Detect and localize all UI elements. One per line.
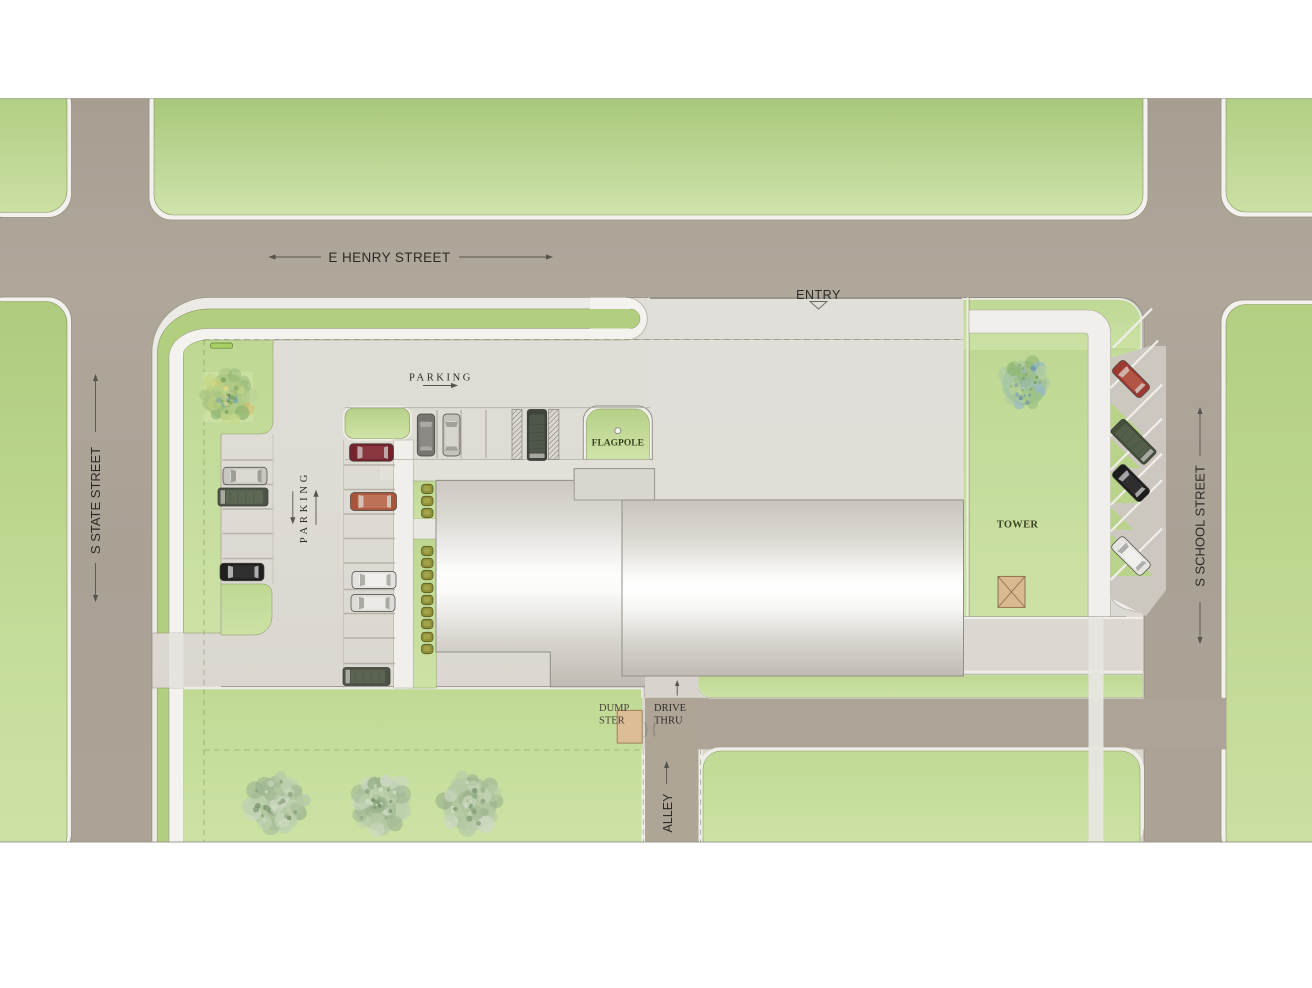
svg-text:ENTRY: ENTRY [796, 288, 841, 302]
svg-text:DRIVE: DRIVE [654, 703, 686, 714]
svg-text:ALLEY: ALLEY [661, 793, 675, 833]
svg-text:STER: STER [599, 716, 625, 727]
svg-text:PARKING: PARKING [409, 373, 473, 384]
svg-text:S STATE STREET: S STATE STREET [88, 447, 103, 554]
svg-text:FLAGPOLE: FLAGPOLE [592, 439, 644, 449]
svg-text:TOWER: TOWER [997, 520, 1039, 531]
svg-text:PARKING: PARKING [299, 471, 310, 543]
svg-text:S SCHOOL STREET: S SCHOOL STREET [1193, 465, 1208, 587]
svg-text:E HENRY STREET: E HENRY STREET [328, 250, 450, 265]
svg-text:DUMP: DUMP [599, 703, 630, 714]
svg-text:THRU: THRU [654, 716, 683, 727]
